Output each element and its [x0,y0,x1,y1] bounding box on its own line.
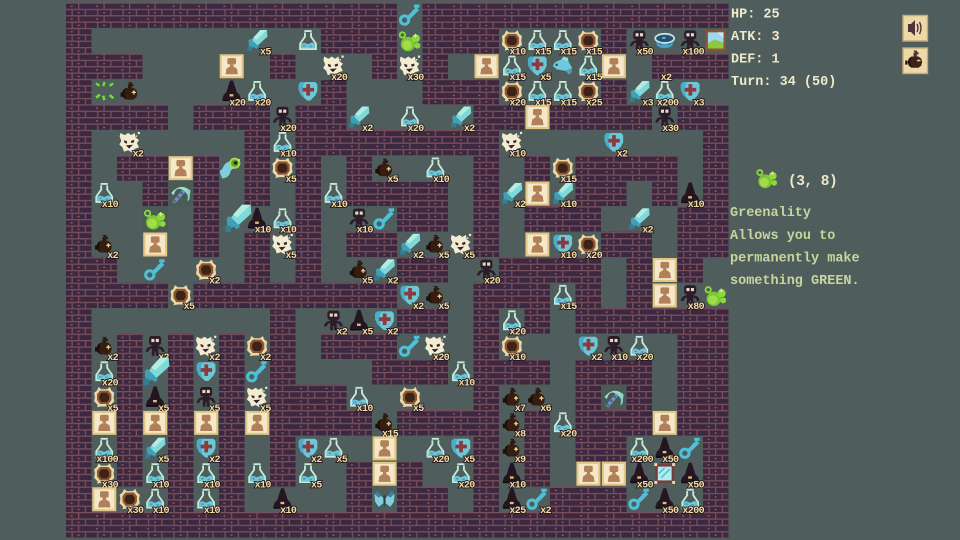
svg-text:x10: x10 [255,481,272,492]
svg-text:x2: x2 [336,328,347,339]
svg-text:x100: x100 [682,47,704,58]
svg-text:x5: x5 [184,302,195,313]
svg-text:permanently make: permanently make [730,252,860,267]
svg-text:x3: x3 [642,98,653,109]
svg-text:x50: x50 [637,47,654,58]
svg-text:x15: x15 [560,302,577,313]
svg-text:x10: x10 [433,175,450,186]
svg-text:x5: x5 [285,251,296,262]
svg-text:x10: x10 [153,506,170,517]
svg-text:DEF: 1: DEF: 1 [731,53,780,68]
svg-text:x2: x2 [464,124,475,135]
svg-text:x20: x20 [560,430,577,441]
svg-text:x2: x2 [209,455,220,466]
svg-text:x80: x80 [688,302,705,313]
svg-text:x7: x7 [515,404,526,415]
svg-text:x2: x2 [387,277,398,288]
svg-text:x5: x5 [285,175,296,186]
svg-text:x10: x10 [331,200,348,211]
svg-text:x2: x2 [209,277,220,288]
svg-text:x8: x8 [515,430,526,441]
svg-text:x3: x3 [693,98,704,109]
svg-text:x10: x10 [102,200,119,211]
svg-text:x20: x20 [509,98,526,109]
svg-text:x10: x10 [357,226,374,237]
svg-text:x10: x10 [458,379,475,390]
svg-text:x20: x20 [433,455,450,466]
svg-text:something GREEN.: something GREEN. [730,274,860,289]
svg-text:x2: x2 [540,506,551,517]
svg-text:x20: x20 [331,73,348,84]
svg-text:x50: x50 [662,506,679,517]
svg-text:x5: x5 [336,455,347,466]
svg-text:x10: x10 [509,149,526,160]
svg-text:x2: x2 [107,353,118,364]
svg-text:x200: x200 [631,455,653,466]
svg-text:x2: x2 [413,302,424,313]
svg-text:x2: x2 [311,455,322,466]
svg-text:x20: x20 [484,277,501,288]
svg-text:x25: x25 [509,506,526,517]
svg-text:x20: x20 [458,481,475,492]
svg-text:x2: x2 [107,251,118,262]
svg-text:x10: x10 [560,200,577,211]
svg-text:x30: x30 [662,124,679,135]
svg-text:x10: x10 [280,506,297,517]
svg-text:x5: x5 [158,455,169,466]
svg-text:x25: x25 [586,98,603,109]
svg-text:x100: x100 [96,455,118,466]
svg-text:x5: x5 [438,302,449,313]
svg-text:x2: x2 [661,73,672,84]
svg-text:x2: x2 [362,124,373,135]
svg-text:x9: x9 [515,455,526,466]
svg-text:HP: 25: HP: 25 [731,8,780,23]
svg-text:x2: x2 [617,149,628,160]
svg-text:x15: x15 [560,47,577,58]
svg-text:x10: x10 [509,353,526,364]
svg-text:x2: x2 [133,149,144,160]
svg-text:x10: x10 [280,226,297,237]
svg-text:x5: x5 [362,277,373,288]
svg-text:x30: x30 [407,73,424,84]
svg-text:x5: x5 [413,404,424,415]
svg-text:x20: x20 [433,353,450,364]
svg-text:x200: x200 [682,506,704,517]
svg-text:x6: x6 [540,404,551,415]
svg-text:x2: x2 [413,251,424,262]
svg-text:Greenality: Greenality [730,206,811,221]
svg-text:x20: x20 [255,98,272,109]
svg-text:x2: x2 [515,200,526,211]
svg-text:x10: x10 [255,226,272,237]
svg-text:x15: x15 [560,98,577,109]
svg-text:x10: x10 [357,404,374,415]
svg-text:x10: x10 [611,353,628,364]
svg-text:ATK: 3: ATK: 3 [731,30,780,45]
svg-text:(3, 8): (3, 8) [788,174,837,190]
svg-text:Turn: 34 (50): Turn: 34 (50) [731,75,836,90]
svg-text:x20: x20 [637,353,654,364]
svg-text:x5: x5 [362,328,373,339]
svg-text:x10: x10 [688,200,705,211]
svg-text:x20: x20 [407,124,424,135]
svg-text:x5: x5 [387,175,398,186]
svg-text:x5: x5 [540,73,551,84]
svg-text:x2: x2 [387,328,398,339]
svg-text:x5: x5 [438,251,449,262]
svg-text:x10: x10 [204,506,221,517]
svg-text:x2: x2 [591,353,602,364]
svg-text:x20: x20 [586,251,603,262]
svg-text:Allows you to: Allows you to [730,229,835,244]
svg-text:x20: x20 [229,98,246,109]
svg-text:x5: x5 [260,47,271,58]
svg-text:x30: x30 [127,506,144,517]
svg-text:x5: x5 [464,251,475,262]
svg-text:x10: x10 [560,251,577,262]
svg-text:x2: x2 [642,226,653,237]
svg-text:x5: x5 [311,481,322,492]
svg-text:x5: x5 [464,455,475,466]
